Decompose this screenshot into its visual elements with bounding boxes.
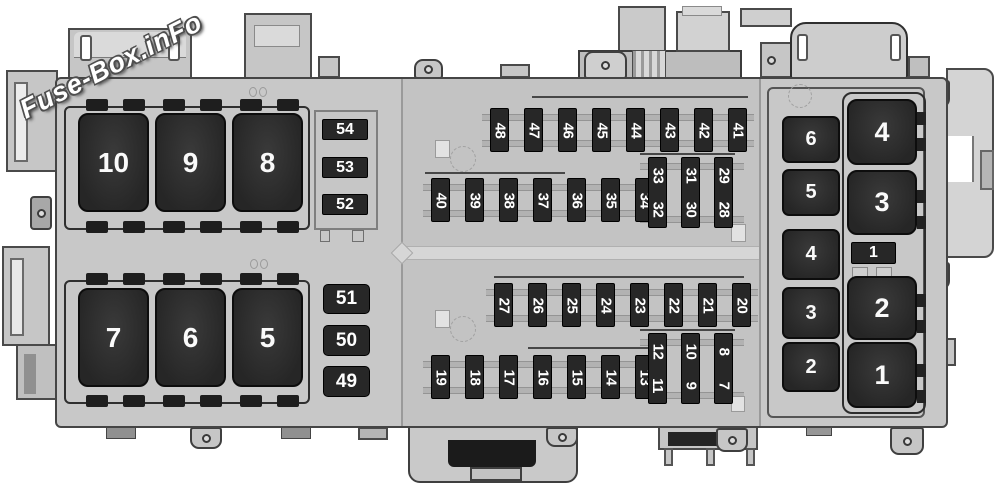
fuse-row-33-28: 3332 3130 2928 (648, 157, 733, 228)
fuse-38: 38 (499, 178, 518, 222)
fuse-46: 46 (558, 108, 577, 152)
relay-contact (163, 273, 185, 285)
relay-contact (917, 190, 926, 203)
right-bracket-notch (946, 136, 974, 182)
relay-contact (917, 112, 926, 125)
fuse-r1: 1 (851, 242, 896, 264)
panel-line (494, 276, 744, 278)
panel-line (640, 329, 735, 331)
fuse-54: 54 (322, 119, 368, 140)
top-raised-block-cap (682, 6, 722, 16)
relay-r3-small: 3 (782, 287, 840, 339)
connector-slot (797, 34, 808, 61)
relay-contact (917, 216, 926, 229)
mounting-tab-top-2 (584, 51, 627, 79)
fuse-52: 52 (322, 194, 368, 215)
panel-line (528, 347, 658, 349)
fuse-41: 41 (728, 108, 747, 152)
fuse-15: 15 (567, 355, 586, 399)
panel-detail-square (435, 310, 450, 328)
fuse-33-32: 3332 (648, 157, 667, 228)
relay-contact (917, 364, 926, 377)
panel-detail-circle (450, 316, 476, 342)
fuse-8-7: 87 (714, 333, 733, 404)
fuse-50: 50 (323, 325, 370, 356)
fuse-35: 35 (601, 178, 620, 222)
connector-slot (80, 35, 92, 61)
screw-hole (202, 434, 211, 443)
bottom-clip-1 (106, 427, 136, 439)
relay-contact (163, 395, 185, 407)
relay-contact (200, 273, 222, 285)
relay-r5: 5 (782, 169, 840, 216)
fuse-37: 37 (533, 178, 552, 222)
relay-contact (240, 99, 262, 111)
middle-divider-band (403, 246, 759, 260)
relay-contact (123, 395, 145, 407)
screw-hole (903, 437, 912, 446)
connector-slot (890, 34, 901, 61)
relay-contact (277, 221, 299, 233)
fuse-31-30: 3130 (681, 157, 700, 228)
top-block-small (500, 64, 530, 78)
fuse-47: 47 (524, 108, 543, 152)
relay-6: 6 (155, 288, 226, 387)
relay-contact (200, 395, 222, 407)
left-connector-2 (2, 246, 50, 346)
right-bracket-step (980, 150, 994, 190)
fuse-36: 36 (567, 178, 586, 222)
panel-detail-circle (450, 146, 476, 172)
top-piece-right (740, 8, 792, 27)
relay-r1-large: 1 (847, 342, 917, 408)
bottom-leg (746, 448, 755, 466)
panel-detail-circle (788, 84, 812, 108)
relay-contact (240, 221, 262, 233)
relay-contact (86, 273, 108, 285)
relay-contact (123, 273, 145, 285)
relay-contact (86, 99, 108, 111)
top-step (318, 56, 340, 78)
panel-line (640, 153, 735, 155)
top-drum-ear (760, 42, 792, 78)
relay-r3-large: 3 (847, 170, 917, 235)
panel-detail-square (731, 396, 745, 412)
screw-hole (424, 65, 433, 74)
mounting-tab-bottom-2 (546, 427, 578, 447)
relay-r2-small: 2 (782, 342, 840, 392)
molded-circle-mark (249, 87, 257, 97)
relay-contact (123, 99, 145, 111)
fuse-25: 25 (562, 283, 581, 327)
mounting-tab-bottom-4 (890, 427, 924, 455)
fuse-42: 42 (694, 108, 713, 152)
mounting-tab-bottom-3 (716, 428, 748, 452)
molded-circle-mark (260, 259, 268, 269)
relay-r4-small: 4 (782, 229, 840, 280)
fuse-48: 48 (490, 108, 509, 152)
fuse-row-27-20: 27 26 25 24 23 22 21 20 (494, 283, 751, 327)
bottom-foot (358, 427, 388, 440)
relay-r2-large: 2 (847, 276, 917, 340)
top-raised-block (676, 11, 730, 52)
bottom-bracket-tab (470, 467, 522, 481)
fuse-53: 53 (322, 157, 368, 178)
bottom-bracket-recess (448, 440, 536, 467)
relay-r4-large: 4 (847, 99, 917, 165)
screw-hole (767, 56, 776, 65)
bottom-leg (706, 448, 715, 466)
connector-slot (10, 258, 24, 336)
fuse-14: 14 (601, 355, 620, 399)
relay-contact (917, 138, 926, 151)
fuse-16: 16 (533, 355, 552, 399)
fuse-row-19-13: 19 18 17 16 15 14 13 (431, 355, 654, 399)
relay-contact (240, 273, 262, 285)
relay-contact (917, 294, 926, 307)
relay-contact (200, 99, 222, 111)
relay-r6: 6 (782, 116, 840, 163)
fuse-44: 44 (626, 108, 645, 152)
fuse-row-12-7: 1211 109 87 (648, 333, 733, 404)
fuse-12-11: 1211 (648, 333, 667, 404)
relay-contact (917, 390, 926, 403)
molded-mark (320, 230, 330, 242)
screw-hole (558, 433, 567, 442)
fuse-29-28: 2928 (714, 157, 733, 228)
fuse-18: 18 (465, 355, 484, 399)
bottom-clip-2 (281, 427, 311, 439)
panel-line (532, 96, 748, 98)
fuse-51: 51 (323, 284, 370, 314)
left-connector-3-slot (24, 354, 36, 394)
fuse-23: 23 (630, 283, 649, 327)
relay-7: 7 (78, 288, 149, 387)
top-connector-2-cap (254, 25, 300, 47)
fuse-21: 21 (698, 283, 717, 327)
fuse-39: 39 (465, 178, 484, 222)
screw-hole (728, 436, 737, 445)
relay-8: 8 (232, 113, 303, 212)
relay-10: 10 (78, 113, 149, 212)
fuse-24: 24 (596, 283, 615, 327)
right-bracket (946, 68, 994, 258)
section-divider-right (759, 79, 761, 426)
mounting-tab-bottom-1 (190, 427, 222, 449)
mounting-tab-top-1 (414, 59, 443, 79)
relay-contact (240, 395, 262, 407)
relay-contact (86, 221, 108, 233)
fuse-row-48-41: 48 47 46 45 44 43 42 41 (490, 108, 747, 152)
panel-detail-square (731, 224, 746, 242)
panel-line (425, 172, 565, 174)
fuse-10-9: 109 (681, 333, 700, 404)
fuse-19: 19 (431, 355, 450, 399)
fuse-26: 26 (528, 283, 547, 327)
relay-contact (200, 221, 222, 233)
fuse-box-diagram: 10 9 8 7 6 5 54 53 52 51 50 49 48 47 46 … (0, 0, 1000, 487)
left-clip (30, 196, 52, 230)
relay-contact (86, 395, 108, 407)
fuse-17: 17 (499, 355, 518, 399)
screw-hole (37, 209, 46, 218)
top-connector-ribs (632, 50, 666, 78)
molded-circle-mark (250, 259, 258, 269)
left-connector-3 (16, 344, 58, 400)
top-drum-connector (790, 22, 908, 80)
top-connector-2 (244, 13, 312, 79)
relay-contact (277, 395, 299, 407)
fuse-22: 22 (664, 283, 683, 327)
fuse-row-40-34: 40 39 38 37 36 35 34 (431, 178, 654, 222)
fuse-40: 40 (431, 178, 450, 222)
fuse-45: 45 (592, 108, 611, 152)
relay-contact (277, 99, 299, 111)
panel-detail-square (435, 140, 450, 158)
molded-circle-mark (259, 87, 267, 97)
relay-contact (163, 99, 185, 111)
fuse-49: 49 (323, 366, 370, 397)
fuse-20: 20 (732, 283, 751, 327)
relay-contact (277, 273, 299, 285)
fuse-27: 27 (494, 283, 513, 327)
relay-5: 5 (232, 288, 303, 387)
screw-hole (601, 61, 610, 70)
fuse-43: 43 (660, 108, 679, 152)
molded-mark (352, 230, 364, 242)
top-corner-piece (908, 56, 930, 78)
bottom-leg (664, 448, 673, 466)
relay-contact (123, 221, 145, 233)
relay-contact (163, 221, 185, 233)
relay-contact (917, 320, 926, 333)
relay-9: 9 (155, 113, 226, 212)
